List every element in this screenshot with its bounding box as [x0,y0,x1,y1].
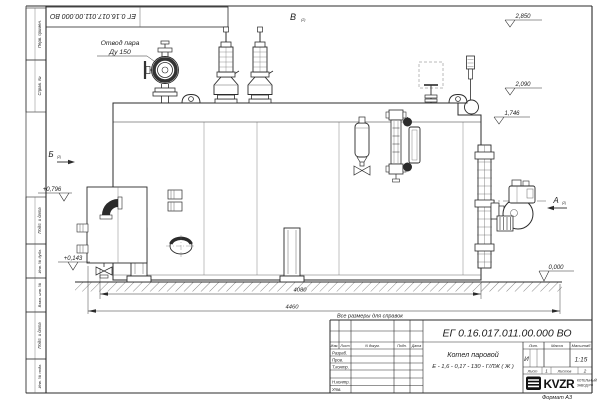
margin-label: Взам. инв. № [37,282,42,307]
margin-label: Справ. № [37,76,42,95]
kvzr-logo: KVZR КОТЕЛЬНЫЙ ЗАВОД РФ [526,377,598,392]
pressure-gauge-siphon [465,56,479,114]
lit-header: Лит. [528,343,538,348]
title-block: ЕГ 0.16.017.011.00.000 ВО Котел паровой … [330,320,598,393]
steam-outlet-valve [145,41,179,103]
col-ndokum: N докум. [365,344,380,348]
corner-stamp-number: ЕГ 0.16.017.011.00.000 ВО [49,12,136,19]
svg-text:2,850: 2,850 [514,14,531,20]
elevation-mark-0796: +0,796 [38,187,72,201]
company-line1: КОТЕЛЬНЫЙ [577,379,598,383]
lit-value: И [524,356,529,363]
lifting-lug-right [449,95,467,104]
sig-razrab: Разраб. [332,351,347,356]
note-reference: Все размеры для справок [337,314,403,320]
steam-outlet-label-line2: Ду 150 [108,49,131,56]
view-marker-top: В (2) [290,12,305,22]
scale-value: 1:15 [575,357,588,364]
format-label: Формат А3 [542,395,573,400]
svg-text:(2): (2) [562,201,566,205]
svg-text:4460: 4460 [286,305,300,311]
margin-column: Перв. примен. Справ. № Подп. и дата Инв.… [26,8,46,393]
margin-label: Перв. примен. [37,20,42,48]
steam-outlet-label: Отвод пара Ду 150 [97,39,158,64]
sig-tkontr: Т.контр. [332,365,349,370]
svg-text:В: В [290,12,296,22]
elevation-mark-1746: 1,746 [494,111,530,124]
shutoff-valve-top [419,62,443,103]
corner-stamp: ЕГ 0.16.017.011.00.000 ВО [46,7,228,27]
scale-header: Масштаб [572,343,591,348]
product-name: Котел паровой [447,350,499,359]
view-marker-left: Б (2) [48,150,75,164]
company-line2: ЗАВОД РФ [577,384,594,388]
blueprint-sheet: Перв. примен. Справ. № Подп. и дата Инв.… [0,0,600,400]
sheet-label: Лист [527,369,538,373]
col-izm: Изм. [331,344,339,348]
sheets-value: 2 [583,368,587,373]
elevation-mark-0143: +0,143 [58,256,90,270]
margin-label: Инв. № дубл. [37,249,42,274]
margin-label: Инв. № подл. [37,364,42,389]
col-list: Лист [339,344,349,348]
col-podp: Подп. [397,344,407,348]
sig-nkontr: Н.контр. [332,380,350,385]
svg-text:А: А [552,196,558,205]
svg-text:2,090: 2,090 [514,82,531,88]
product-type: Е - 1,6 - 0,17 - 130 - Г/ЛЖ ( Ж ) [432,364,514,370]
margin-label: Подп. и дата [37,322,42,349]
safety-valve-1 [214,27,239,103]
sheets-label: Листов [557,369,572,373]
sig-utv: Утв. [332,387,342,392]
logo-text: KVZR [544,377,576,391]
sheet-value: 1 [545,368,548,373]
support-leg-right [280,228,304,282]
elevation-mark-0000: 0,000 [539,265,574,281]
svg-text:+0,796: +0,796 [43,187,62,193]
steam-outlet-label-line1: Отвод пара [101,39,140,47]
svg-text:(2): (2) [301,18,305,22]
svg-text:(2): (2) [57,155,61,159]
lifting-lug-left [182,95,200,104]
doc-number: ЕГ 0.16.017.011.00.000 ВО [442,328,571,340]
sig-prov: Пров. [332,358,343,363]
svg-text:0,000: 0,000 [548,265,564,271]
view-marker-right: А (2) [547,196,567,210]
safety-valve-2 [248,27,273,103]
svg-text:4080: 4080 [294,288,308,294]
svg-text:Б: Б [48,150,53,159]
svg-text:+0,143: +0,143 [64,256,83,262]
margin-label: Подп. и дата [37,207,42,234]
ground-hatch [75,282,562,292]
elevation-mark-2090: 2,090 [505,82,542,95]
svg-text:1,746: 1,746 [504,111,520,117]
mass-header: Масса [551,343,564,348]
col-data: Дата [411,344,421,348]
boiler-drawing: Перв. примен. Справ. № Подп. и дата Инв.… [0,0,600,400]
elevation-mark-2850: 2,850 [505,14,542,27]
burner [491,180,535,231]
